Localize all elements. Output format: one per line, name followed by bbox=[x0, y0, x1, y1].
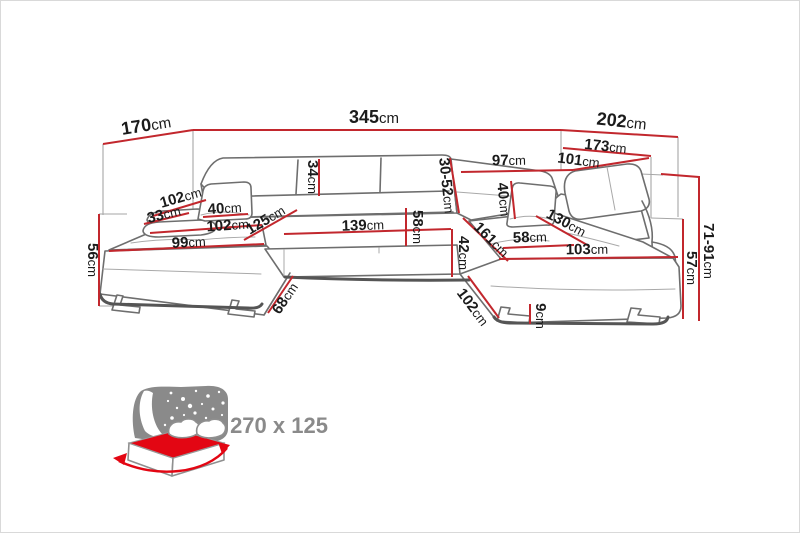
right-chaise-base bbox=[460, 258, 681, 323]
diagram-svg: 170cm 345cm 202cm 173cm 97cm 101cm 34cm … bbox=[1, 1, 799, 532]
dim-label-71-91cm: 71-91cm bbox=[700, 223, 717, 279]
dim-label-58cm-right: 58cm bbox=[513, 228, 548, 246]
dim-label-103cm: 103cm bbox=[566, 241, 609, 259]
dim-label-57cm: 57cm bbox=[683, 251, 700, 285]
dim-label-139cm: 139cm bbox=[341, 216, 384, 234]
dim-label-345cm: 345cm bbox=[349, 107, 399, 127]
dim-label-34cm: 34cm bbox=[304, 160, 321, 194]
dim-label-58cm-mid: 58cm bbox=[409, 210, 426, 244]
dim-label-99cm: 99cm bbox=[171, 233, 206, 252]
bed-pillow-right bbox=[197, 419, 226, 438]
dim-label-56cm: 56cm bbox=[84, 243, 101, 277]
dim-label-97cm: 97cm bbox=[492, 152, 526, 170]
dim-label-9cm: 9cm bbox=[532, 303, 549, 329]
sleeping-function-icon: 270 x 125 bbox=[113, 386, 328, 476]
sofa-dimension-diagram: 170cm 345cm 202cm 173cm 97cm 101cm 34cm … bbox=[0, 0, 800, 533]
dim-label-202cm: 202cm bbox=[596, 108, 648, 133]
sleeping-area-size-label: 270 x 125 bbox=[230, 413, 328, 438]
dim-label-42cm: 42cm bbox=[455, 236, 472, 270]
